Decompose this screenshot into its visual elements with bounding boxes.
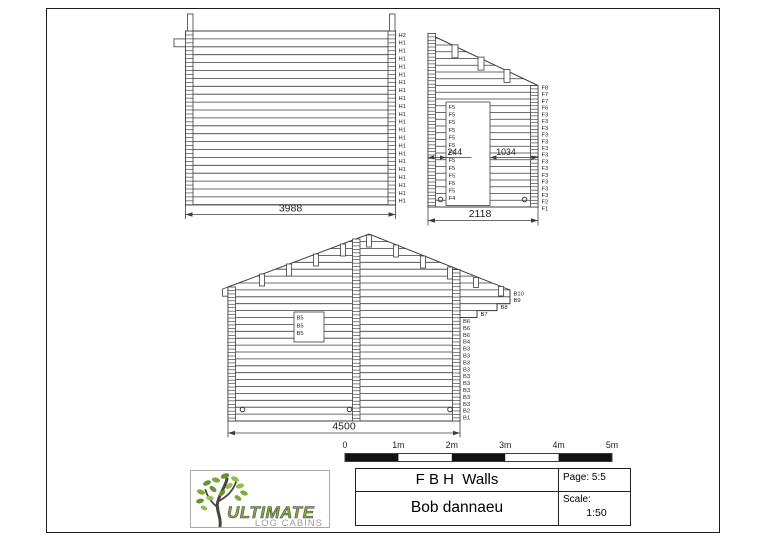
roof-purlin [341,244,346,256]
wall-b-log-label: B3 [463,347,470,353]
tree-leaf [196,498,205,505]
wall-f-drawing: F5F5F5F5F5F5F5F5F5F5F5F5F4 244 1034 F8F7… [428,34,548,226]
wall-f-log-label: F7 [542,99,549,105]
drawing-title: F B H Walls [356,469,559,492]
wall-h-log-label: H1 [399,167,406,173]
wall-f-log-label: F5 [449,135,456,141]
tree-leaf [196,488,206,495]
wall-h-log-label: H1 [399,183,406,189]
wall-h-log-label: H1 [399,136,406,142]
tree-leaf [211,477,220,484]
wall-b-log-label: B3 [463,402,470,408]
wall-h-log-label: H1 [399,120,406,126]
wall-f-log-label: F3 [542,119,549,125]
wall-h-log-label: H1 [399,191,406,197]
wall-b-log-label: B3 [463,354,470,360]
wall-h-log-label: H1 [399,128,406,134]
wall-f-log-label: F5 [449,113,456,119]
wall-h-log-label: H1 [399,41,406,47]
roof-purlin [394,245,399,257]
wall-f-dim-left-text: 244 [448,147,463,157]
walls-drawing-svg: H2H1H1H1H1H1H1H1H1H1H1H1H1H1H1H1H1H1H1H1… [0,0,768,543]
wall-h-log-label: H1 [399,49,406,55]
scale-cell: Scale: 1:50 [559,492,630,525]
tree-leaf [230,475,240,483]
wall-b-log-label: B3 [463,360,470,366]
scale-bar-labels: 01m2m3m4m5m [343,440,619,450]
scale-bar-segment [345,454,398,462]
wall-b-log-label: B8 [501,305,508,311]
brand-subtitle: LOG CABINS [255,518,323,527]
roof-purlin [452,45,458,58]
wall-b-dim-text: 4500 [332,421,356,433]
dim-arrow [428,218,435,223]
roof-purlin [260,274,265,286]
wall-h-log-label: H1 [399,175,406,181]
roof-purlin [421,256,426,268]
scale-bar-label: 2m [446,440,458,450]
scale-bar-label: 0 [343,440,348,450]
logo-graphic: ULTIMATE LOG CABINS [191,471,329,527]
wall-b-log-label: B5 [297,316,304,322]
wall-h-log-label: H1 [399,159,406,165]
tree-leaf [235,483,244,490]
wall-f-labels: F8F7F7F6F3F3F3F3F3F3F3F3F3F3F3F3F3F2F1 [542,86,549,213]
scale-bar-label: 3m [499,440,511,450]
wall-f-log-label: F5 [449,166,456,172]
screw-mark [347,407,352,412]
title-block: F B H Walls Page: 5:5 Bob dannaeu Scale:… [355,468,631,526]
wall-b-log-label: B6 [463,333,470,339]
dim-arrow [228,431,235,436]
wall-f-log-label: F3 [542,173,549,179]
wall-f-log-label: F6 [542,106,549,112]
scale-bar-label: 5m [606,440,618,450]
wall-b-log-label: B3 [463,381,470,387]
wall-b-log-label: B6 [463,326,470,332]
wall-b-log-label: B7 [481,312,488,318]
dim-arrow [453,431,460,436]
scale-bar-label: 1m [392,440,404,450]
screw-mark [438,197,443,202]
wall-h-labels: H2H1H1H1H1H1H1H1H1H1H1H1H1H1H1H1H1H1H1H1… [399,33,406,205]
wall-f-log-label: F3 [542,146,549,152]
roof-purlin [474,278,479,288]
wall-f-left-corner [428,34,436,208]
wall-h-log-label: H1 [399,151,406,157]
wall-h-log-label: H1 [399,88,406,94]
wall-b-dimension: 4500 [228,421,460,438]
wall-b-log-label: B1 [463,416,470,422]
wall-f-log-label: F7 [542,92,549,98]
wall-b-log-label: B3 [463,374,470,380]
wall-h-log-label: H1 [399,64,406,70]
wall-h-left-protrusion [174,39,186,47]
roof-purlin [499,287,504,297]
wall-f-log-label: F3 [542,159,549,165]
scale-bar: 01m2m3m4m5m [343,440,619,462]
scale-value: 1:50 [563,505,630,519]
roof-purlin [448,267,453,279]
wall-b-log-label: B3 [463,388,470,394]
roof-purlin [367,235,372,247]
wall-h-drawing: H2H1H1H1H1H1H1H1H1H1H1H1H1H1H1H1H1H1H1H1… [174,14,406,219]
wall-b-log-label: B5 [297,331,304,337]
wall-h-log-label: H1 [399,57,406,63]
wall-f-log-label: F5 [449,181,456,187]
wall-f-log-label: F3 [542,133,549,139]
wall-f-log-label: F5 [449,105,456,111]
wall-b-drawing: B5B5B5 B10B9B8B7 B6B6B6B4B3B3B3B3B3B3B3B… [223,234,524,438]
wall-f-log-label: F3 [542,139,549,145]
wall-h-log-label: H1 [399,96,406,102]
tree-leaf [220,472,230,480]
wall-f-log-label: F3 [542,193,549,199]
wall-h-left-post [188,14,194,31]
wall-f-log-label: F3 [542,180,549,186]
scale-bar-segment [559,454,612,462]
wall-b-log-label: B10 [514,291,524,297]
dim-arrow [440,156,446,160]
wall-f-log-label: F5 [449,128,456,134]
wall-h-log-label: H1 [399,199,406,205]
wall-f-log-label: F8 [542,86,549,92]
screw-mark [240,407,245,412]
dim-arrow [531,218,538,223]
wall-f-dim-right-text: 1034 [496,147,516,157]
tree-leaf [208,485,217,494]
scale-bar-label: 4m [552,440,564,450]
tree-leaf [239,489,248,496]
wall-h-log-label: H1 [399,112,406,118]
wall-f-log-label: F5 [449,189,456,195]
dim-arrow [186,212,193,217]
client-name: Bob dannaeu [356,492,559,525]
wall-f-log-label: F2 [542,200,549,206]
tree-leaf [234,494,243,502]
wall-b-labels: B6B6B6B4B3B3B3B3B3B3B3B3B3B2B1 [463,319,471,422]
wall-f-log-label: F1 [542,206,549,212]
wall-b-log-label: B6 [463,319,470,325]
wall-f-log-label: F5 [449,120,456,126]
wall-h-log-label: H2 [399,33,406,39]
wall-f-log-label: F3 [542,166,549,172]
roof-purlin [287,264,292,276]
wall-b-log-label: B5 [297,323,304,329]
wall-h-log-label: H1 [399,143,406,149]
page-number: Page: 5:5 [559,469,630,492]
wall-b-window-labels: B5B5B5 [297,316,304,338]
logo-box: ULTIMATE LOG CABINS [190,470,330,528]
wall-h-log-label: H1 [399,72,406,78]
wall-b-log-label: B3 [463,367,470,373]
wall-f-log-label: F4 [449,196,457,202]
screw-mark [522,197,527,202]
tree-leaf [202,479,212,487]
wall-b-log-label: B3 [463,395,470,401]
roof-purlin [314,254,319,266]
wall-f-dim-text: 2118 [469,208,492,220]
wall-f-log-label: F3 [542,126,549,132]
roof-purlin [478,57,484,70]
wall-h-right-post [390,14,396,31]
screw-mark [448,407,453,412]
wall-f-log-label: F5 [449,158,456,164]
wall-b-log-label: B9 [514,298,521,304]
tree-trunk [217,479,227,526]
roof-purlin [504,69,510,82]
wall-h-log-label: H1 [399,80,406,86]
wall-h-log-label: H1 [399,104,406,110]
wall-h-planks [186,31,396,205]
tree-leaf [200,505,208,512]
wall-b-log-label: B2 [463,409,470,415]
wall-b-log-label: B4 [463,340,471,346]
wall-f-log-label: F5 [449,173,456,179]
wall-h-dim-text: 3988 [279,203,303,215]
scale-label: Scale: [563,494,630,505]
wall-f-log-label: F3 [542,112,549,118]
wall-b-left-eave [223,287,229,296]
drawing-sheet: H2H1H1H1H1H1H1H1H1H1H1H1H1H1H1H1H1H1H1H1… [0,0,768,543]
wall-f-log-label: F3 [542,153,549,159]
wall-f-dimension: 2118 [428,207,538,226]
scale-bar-segment [452,454,505,462]
wall-f-log-label: F3 [542,186,549,192]
dim-arrow [389,212,396,217]
